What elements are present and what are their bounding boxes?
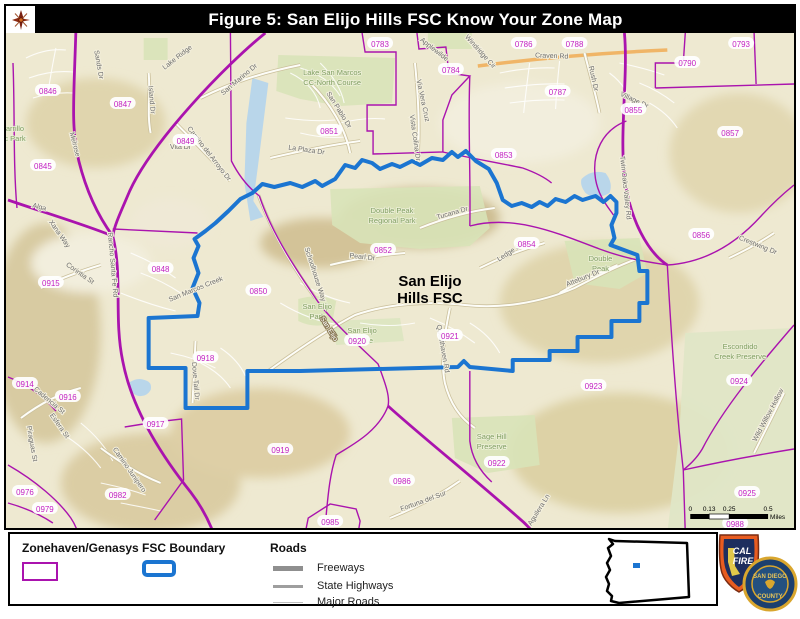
- zone-label: 0847: [110, 97, 136, 109]
- svg-text:0924: 0924: [730, 377, 748, 386]
- street-label: Alga: [32, 202, 47, 212]
- zonehaven-swatch: [22, 562, 58, 581]
- svg-text:0788: 0788: [566, 40, 584, 49]
- zone-label: 0979: [32, 502, 58, 514]
- svg-text:0920: 0920: [348, 337, 366, 346]
- zone-label: 0919: [267, 443, 293, 455]
- zone-label: 0857: [717, 126, 743, 138]
- svg-text:0.5: 0.5: [764, 506, 773, 513]
- zone-label: 0985: [317, 515, 343, 527]
- legend-major-roads-row: Major Roads: [273, 596, 379, 608]
- zone-label: 0854: [514, 237, 540, 249]
- major-road-line-swatch: [273, 602, 303, 603]
- zone-label: 0917: [143, 417, 169, 429]
- street-label: Craven Rd: [535, 52, 569, 60]
- zone-label: 0986: [389, 474, 415, 486]
- legend-freeways-row: Freeways: [273, 562, 365, 574]
- legend-roads-label: Roads: [270, 541, 307, 555]
- zone-label: 0916: [55, 390, 81, 402]
- freeways-label: Freeways: [317, 562, 365, 574]
- zone-label: 0787: [545, 85, 571, 97]
- north-arrow-icon: [9, 9, 33, 31]
- svg-text:0919: 0919: [271, 446, 289, 455]
- svg-text:0982: 0982: [109, 491, 127, 500]
- zone-label: 0923: [581, 379, 607, 391]
- zone-label: 0853: [491, 148, 517, 160]
- zone-label: 0786: [511, 37, 537, 49]
- svg-text:0979: 0979: [36, 505, 54, 514]
- svg-text:0847: 0847: [114, 100, 132, 109]
- svg-text:0784: 0784: [442, 66, 460, 75]
- svg-text:0845: 0845: [34, 162, 52, 171]
- zone-label: 0849: [173, 134, 199, 146]
- state-highway-line-swatch: [273, 585, 303, 588]
- zone-label: 0982: [105, 488, 131, 500]
- svg-text:0790: 0790: [678, 59, 696, 68]
- zone-label: 0920: [344, 334, 370, 346]
- svg-text:0783: 0783: [371, 40, 389, 49]
- legend-fsc-label: FSC Boundary: [142, 541, 225, 555]
- north-arrow-box: [6, 6, 37, 33]
- svg-text:0846: 0846: [39, 87, 57, 96]
- svg-text:0851: 0851: [320, 127, 338, 136]
- zone-label: 0851: [316, 124, 342, 136]
- svg-text:COUNTY: COUNTY: [757, 594, 782, 600]
- san-diego-county-badge: SAN DIEGO COUNTY: [744, 558, 796, 610]
- area-label: Double PeakRegional Park: [369, 206, 416, 225]
- zone-label: 0783: [367, 37, 393, 49]
- svg-text:0914: 0914: [16, 380, 34, 389]
- fsc-location-marker: [633, 563, 640, 568]
- county-inset-map: [595, 536, 707, 604]
- zone-label: 0915: [38, 276, 64, 288]
- zone-label: 0925: [734, 486, 760, 498]
- street-label: Sands Dr: [92, 50, 104, 81]
- zone-label: 0846: [35, 84, 61, 96]
- zone-label: 0850: [245, 284, 271, 296]
- agency-logos: CAL FIRE SAN DIEGO COUNTY: [716, 532, 798, 616]
- street-label: Aguilera Ln: [527, 493, 552, 527]
- svg-text:0916: 0916: [59, 393, 77, 402]
- header: Figure 5: San Elijo Hills FSC Know Your …: [6, 6, 794, 33]
- zone-label: 0856: [688, 228, 714, 240]
- area-label: Lake San MarcosCC-North Course: [303, 68, 361, 87]
- zone-label: 0924: [726, 374, 752, 386]
- svg-text:0: 0: [688, 506, 692, 513]
- svg-text:0855: 0855: [625, 106, 643, 115]
- zone-label: 0918: [193, 351, 219, 363]
- map-frame: Figure 5: San Elijo Hills FSC Know Your …: [4, 4, 796, 530]
- fsc-boundary-swatch: [142, 560, 176, 577]
- svg-text:0848: 0848: [152, 265, 170, 274]
- svg-text:0853: 0853: [495, 151, 513, 160]
- street-label: Crestwing Dr: [738, 235, 779, 257]
- svg-text:CAL: CAL: [733, 546, 752, 556]
- svg-text:0917: 0917: [147, 420, 165, 429]
- zone-label: 0855: [620, 103, 646, 115]
- svg-text:0.25: 0.25: [723, 506, 736, 513]
- zone-label: 0976: [12, 485, 38, 497]
- svg-text:SAN DIEGO: SAN DIEGO: [753, 574, 787, 580]
- legend-zonehaven-label: Zonehaven/Genasys: [22, 541, 139, 555]
- svg-text:0857: 0857: [721, 129, 739, 138]
- zone-label: 0845: [30, 159, 56, 171]
- svg-text:0921: 0921: [441, 332, 459, 341]
- zone-label: 0852: [370, 243, 396, 255]
- street-label: Fortuna del Sur: [400, 490, 448, 513]
- svg-text:0988: 0988: [726, 520, 744, 528]
- map: Lake San MarcosCC-North CourseDouble Pea…: [6, 33, 794, 528]
- figure-title: Figure 5: San Elijo Hills FSC Know Your …: [37, 6, 794, 33]
- page: Figure 5: San Elijo Hills FSC Know Your …: [0, 0, 800, 619]
- street-label: Twin Oaks Valley Rd: [618, 156, 632, 220]
- svg-text:0.13: 0.13: [703, 506, 716, 513]
- svg-text:0786: 0786: [515, 40, 533, 49]
- state-highways-label: State Highways: [317, 580, 393, 592]
- svg-text:0850: 0850: [250, 287, 268, 296]
- area-label: arrilloc Park: [6, 124, 26, 143]
- zone-label: 0848: [148, 262, 174, 274]
- major-roads-label: Major Roads: [317, 596, 379, 608]
- freeway-line-swatch: [273, 566, 303, 571]
- street-label: Rush Dr: [587, 65, 599, 92]
- zone-label: 0788: [562, 37, 588, 49]
- zone-label: 0790: [674, 56, 700, 68]
- zone-label: 0793: [728, 37, 754, 49]
- zone-label: 0921: [437, 329, 463, 341]
- legend-state-highways-row: State Highways: [273, 580, 393, 592]
- svg-text:0922: 0922: [488, 459, 506, 468]
- zone-label: 0914: [12, 377, 38, 389]
- svg-text:0985: 0985: [321, 518, 339, 527]
- svg-text:0976: 0976: [16, 488, 34, 497]
- svg-text:0986: 0986: [393, 477, 411, 486]
- svg-text:0852: 0852: [374, 246, 392, 255]
- svg-text:0849: 0849: [177, 137, 195, 146]
- svg-text:0793: 0793: [732, 40, 750, 49]
- zone-label: 0784: [438, 63, 464, 75]
- svg-text:0854: 0854: [518, 240, 536, 249]
- svg-text:0787: 0787: [549, 88, 567, 97]
- zone-label: 0922: [484, 456, 510, 468]
- svg-text:0918: 0918: [197, 354, 215, 363]
- legend: Zonehaven/Genasys FSC Boundary Roads Fre…: [8, 532, 718, 606]
- svg-text:0923: 0923: [585, 382, 603, 391]
- svg-text:0915: 0915: [42, 279, 60, 288]
- area-label: Sage HillPreserve: [477, 432, 507, 451]
- svg-text:0856: 0856: [692, 231, 710, 240]
- svg-text:0925: 0925: [738, 489, 756, 498]
- fsc-area-label: San ElijoHills FSC: [397, 273, 463, 307]
- scale-unit: Miles: [770, 514, 786, 521]
